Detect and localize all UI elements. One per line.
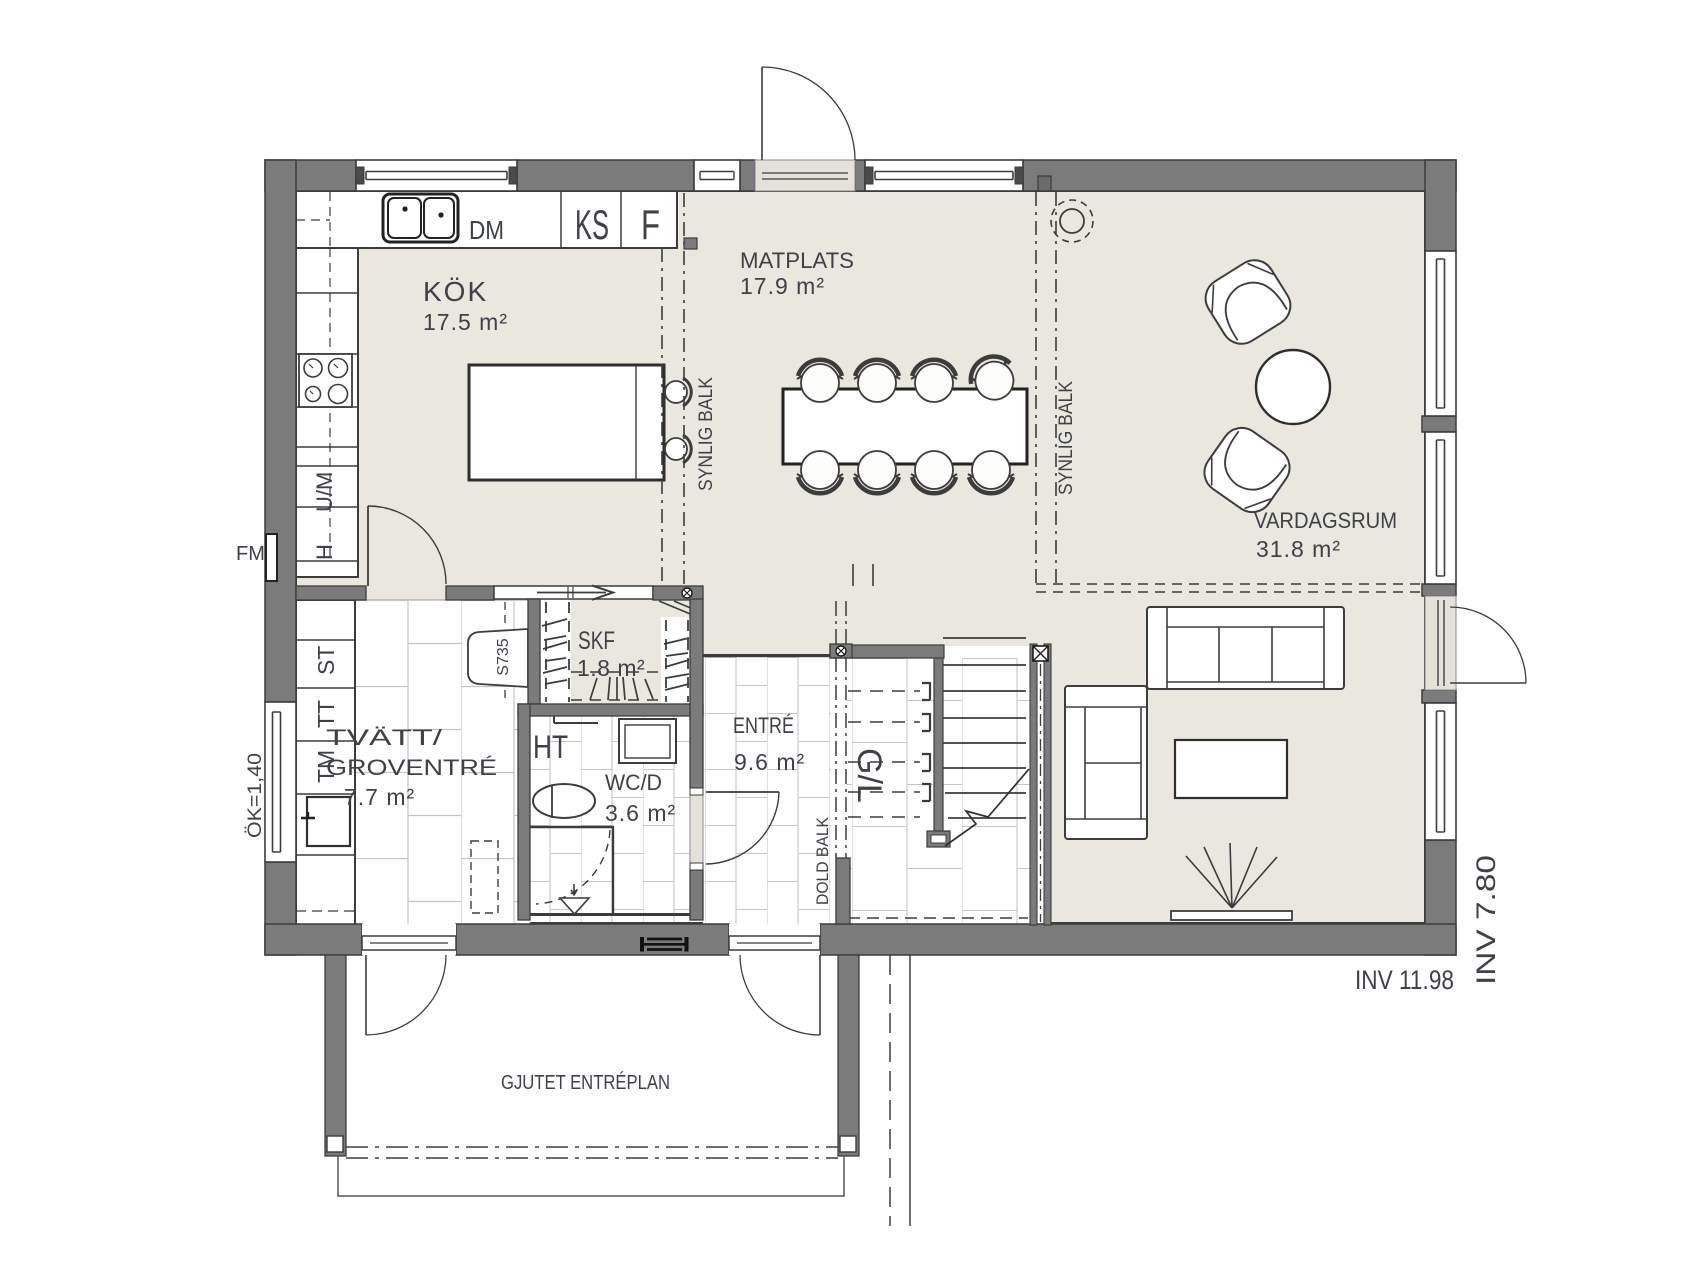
svg-text:DM: DM (469, 215, 504, 245)
svg-text:F: F (641, 201, 660, 248)
svg-text:WC/D: WC/D (605, 770, 662, 795)
svg-text:TT: TT (313, 700, 339, 728)
svg-text:MATPLATS: MATPLATS (740, 248, 854, 273)
svg-text:ÖK=1,40: ÖK=1,40 (245, 753, 266, 838)
svg-text:9.6 m²: 9.6 m² (734, 749, 805, 775)
svg-text:DOLD BALK: DOLD BALK (813, 816, 832, 905)
svg-text:TVÄTT/: TVÄTT/ (326, 725, 443, 750)
svg-text:31.8 m²: 31.8 m² (1256, 536, 1341, 562)
svg-text:17.9 m²: 17.9 m² (740, 273, 825, 299)
svg-text:GROVENTRÉ: GROVENTRÉ (326, 755, 497, 780)
svg-text:KÖK: KÖK (423, 276, 488, 307)
svg-text:GJUTET ENTRÉPLAN: GJUTET ENTRÉPLAN (501, 1071, 670, 1094)
svg-text:S735: S735 (495, 638, 512, 675)
svg-text:17.5 m²: 17.5 m² (423, 309, 508, 335)
svg-text:7.7 m²: 7.7 m² (344, 784, 415, 810)
svg-text:TM: TM (313, 750, 339, 783)
svg-text:FM: FM (236, 543, 265, 565)
svg-text:1.8 m²: 1.8 m² (577, 655, 645, 681)
svg-text:U/M: U/M (312, 472, 337, 512)
svg-text:SKF: SKF (578, 627, 615, 655)
svg-text:VARDAGSRUM: VARDAGSRUM (1254, 508, 1397, 533)
svg-text:ENTRÉ: ENTRÉ (733, 713, 794, 738)
svg-text:INV 7.80: INV 7.80 (1471, 855, 1501, 985)
svg-text:3.6 m²: 3.6 m² (605, 800, 676, 826)
svg-text:SYNLIG BALK: SYNLIG BALK (696, 377, 717, 491)
svg-text:HT: HT (533, 729, 568, 765)
svg-text:SYNLIG BALK: SYNLIG BALK (1056, 381, 1077, 495)
svg-text:H: H (312, 544, 337, 560)
svg-text:KS: KS (575, 201, 609, 248)
svg-text:G/L: G/L (850, 748, 888, 803)
svg-text:INV 11.98: INV 11.98 (1355, 965, 1454, 995)
svg-text:ST: ST (313, 646, 339, 675)
